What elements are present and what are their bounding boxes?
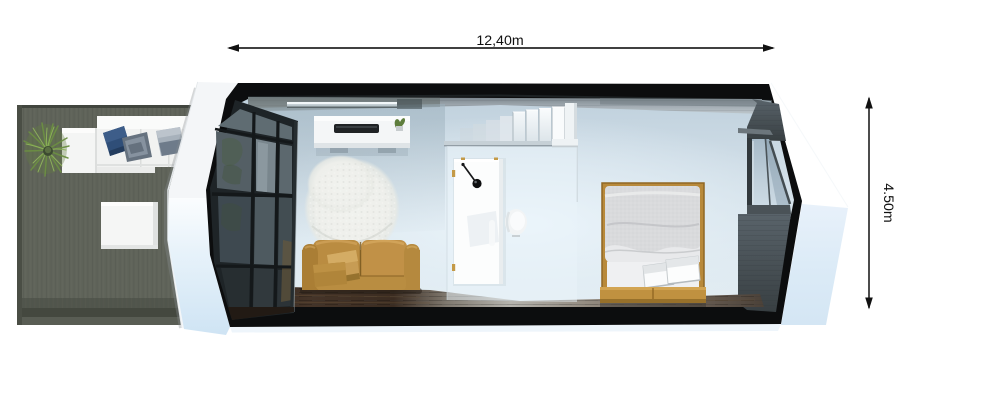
svg-text:12,40m: 12,40m — [476, 33, 523, 49]
svg-text:4.50m: 4.50m — [880, 183, 896, 222]
